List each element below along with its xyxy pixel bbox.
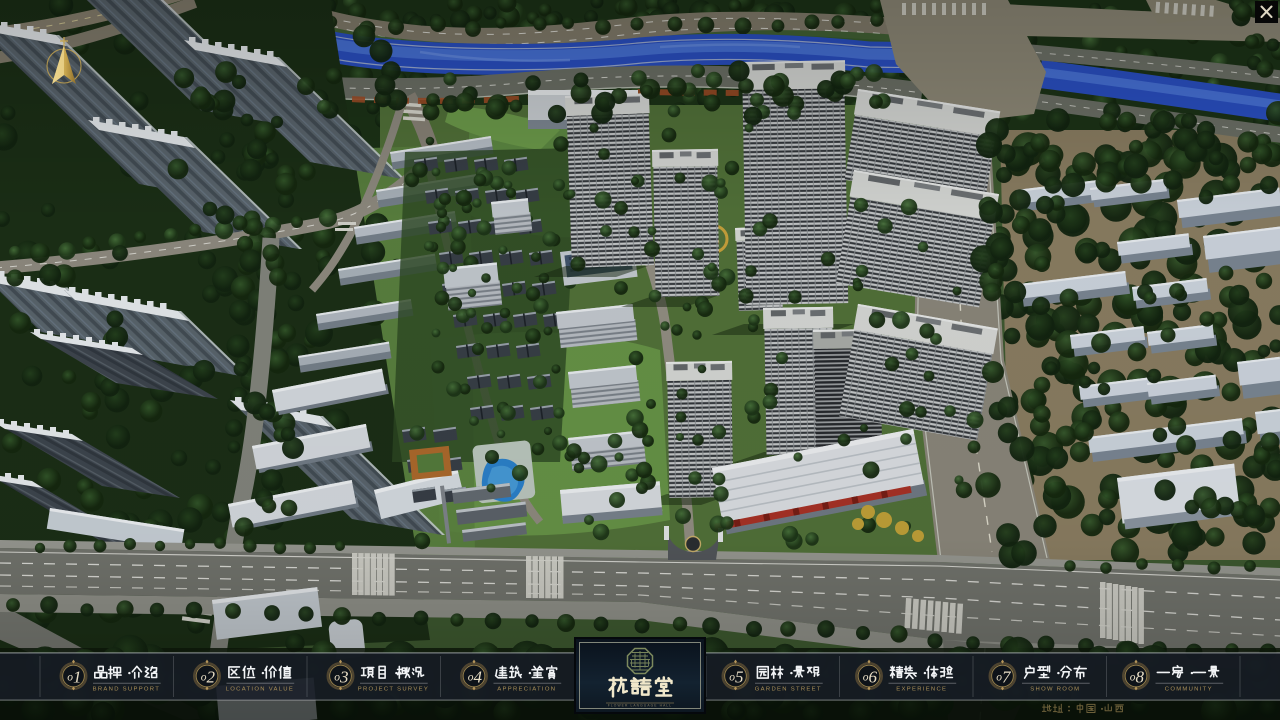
svg-text:LOCATION VALUE: LOCATION VALUE xyxy=(226,687,294,693)
svg-text:PROJECT SURVEY: PROJECT SURVEY xyxy=(358,687,429,693)
svg-text:FLOWER LANGUAGE HALL: FLOWER LANGUAGE HALL xyxy=(608,703,673,707)
svg-text:BRAND SUPPORT: BRAND SUPPORT xyxy=(93,687,161,693)
svg-text:1: 1 xyxy=(73,668,82,687)
svg-text:3: 3 xyxy=(339,668,349,687)
svg-text:GARDEN STREET: GARDEN STREET xyxy=(755,687,822,693)
svg-text:EXPERIENCE: EXPERIENCE xyxy=(896,687,947,693)
svg-text:6: 6 xyxy=(869,668,878,687)
svg-text:8: 8 xyxy=(1136,668,1145,687)
svg-text:4: 4 xyxy=(474,668,483,687)
svg-text:APPRECIATION: APPRECIATION xyxy=(497,687,556,693)
svg-text:COMMUNITY: COMMUNITY xyxy=(1165,687,1213,693)
svg-text:2: 2 xyxy=(207,668,216,687)
svg-text:5: 5 xyxy=(735,668,744,687)
svg-text:SHOW ROOM: SHOW ROOM xyxy=(1030,687,1080,693)
